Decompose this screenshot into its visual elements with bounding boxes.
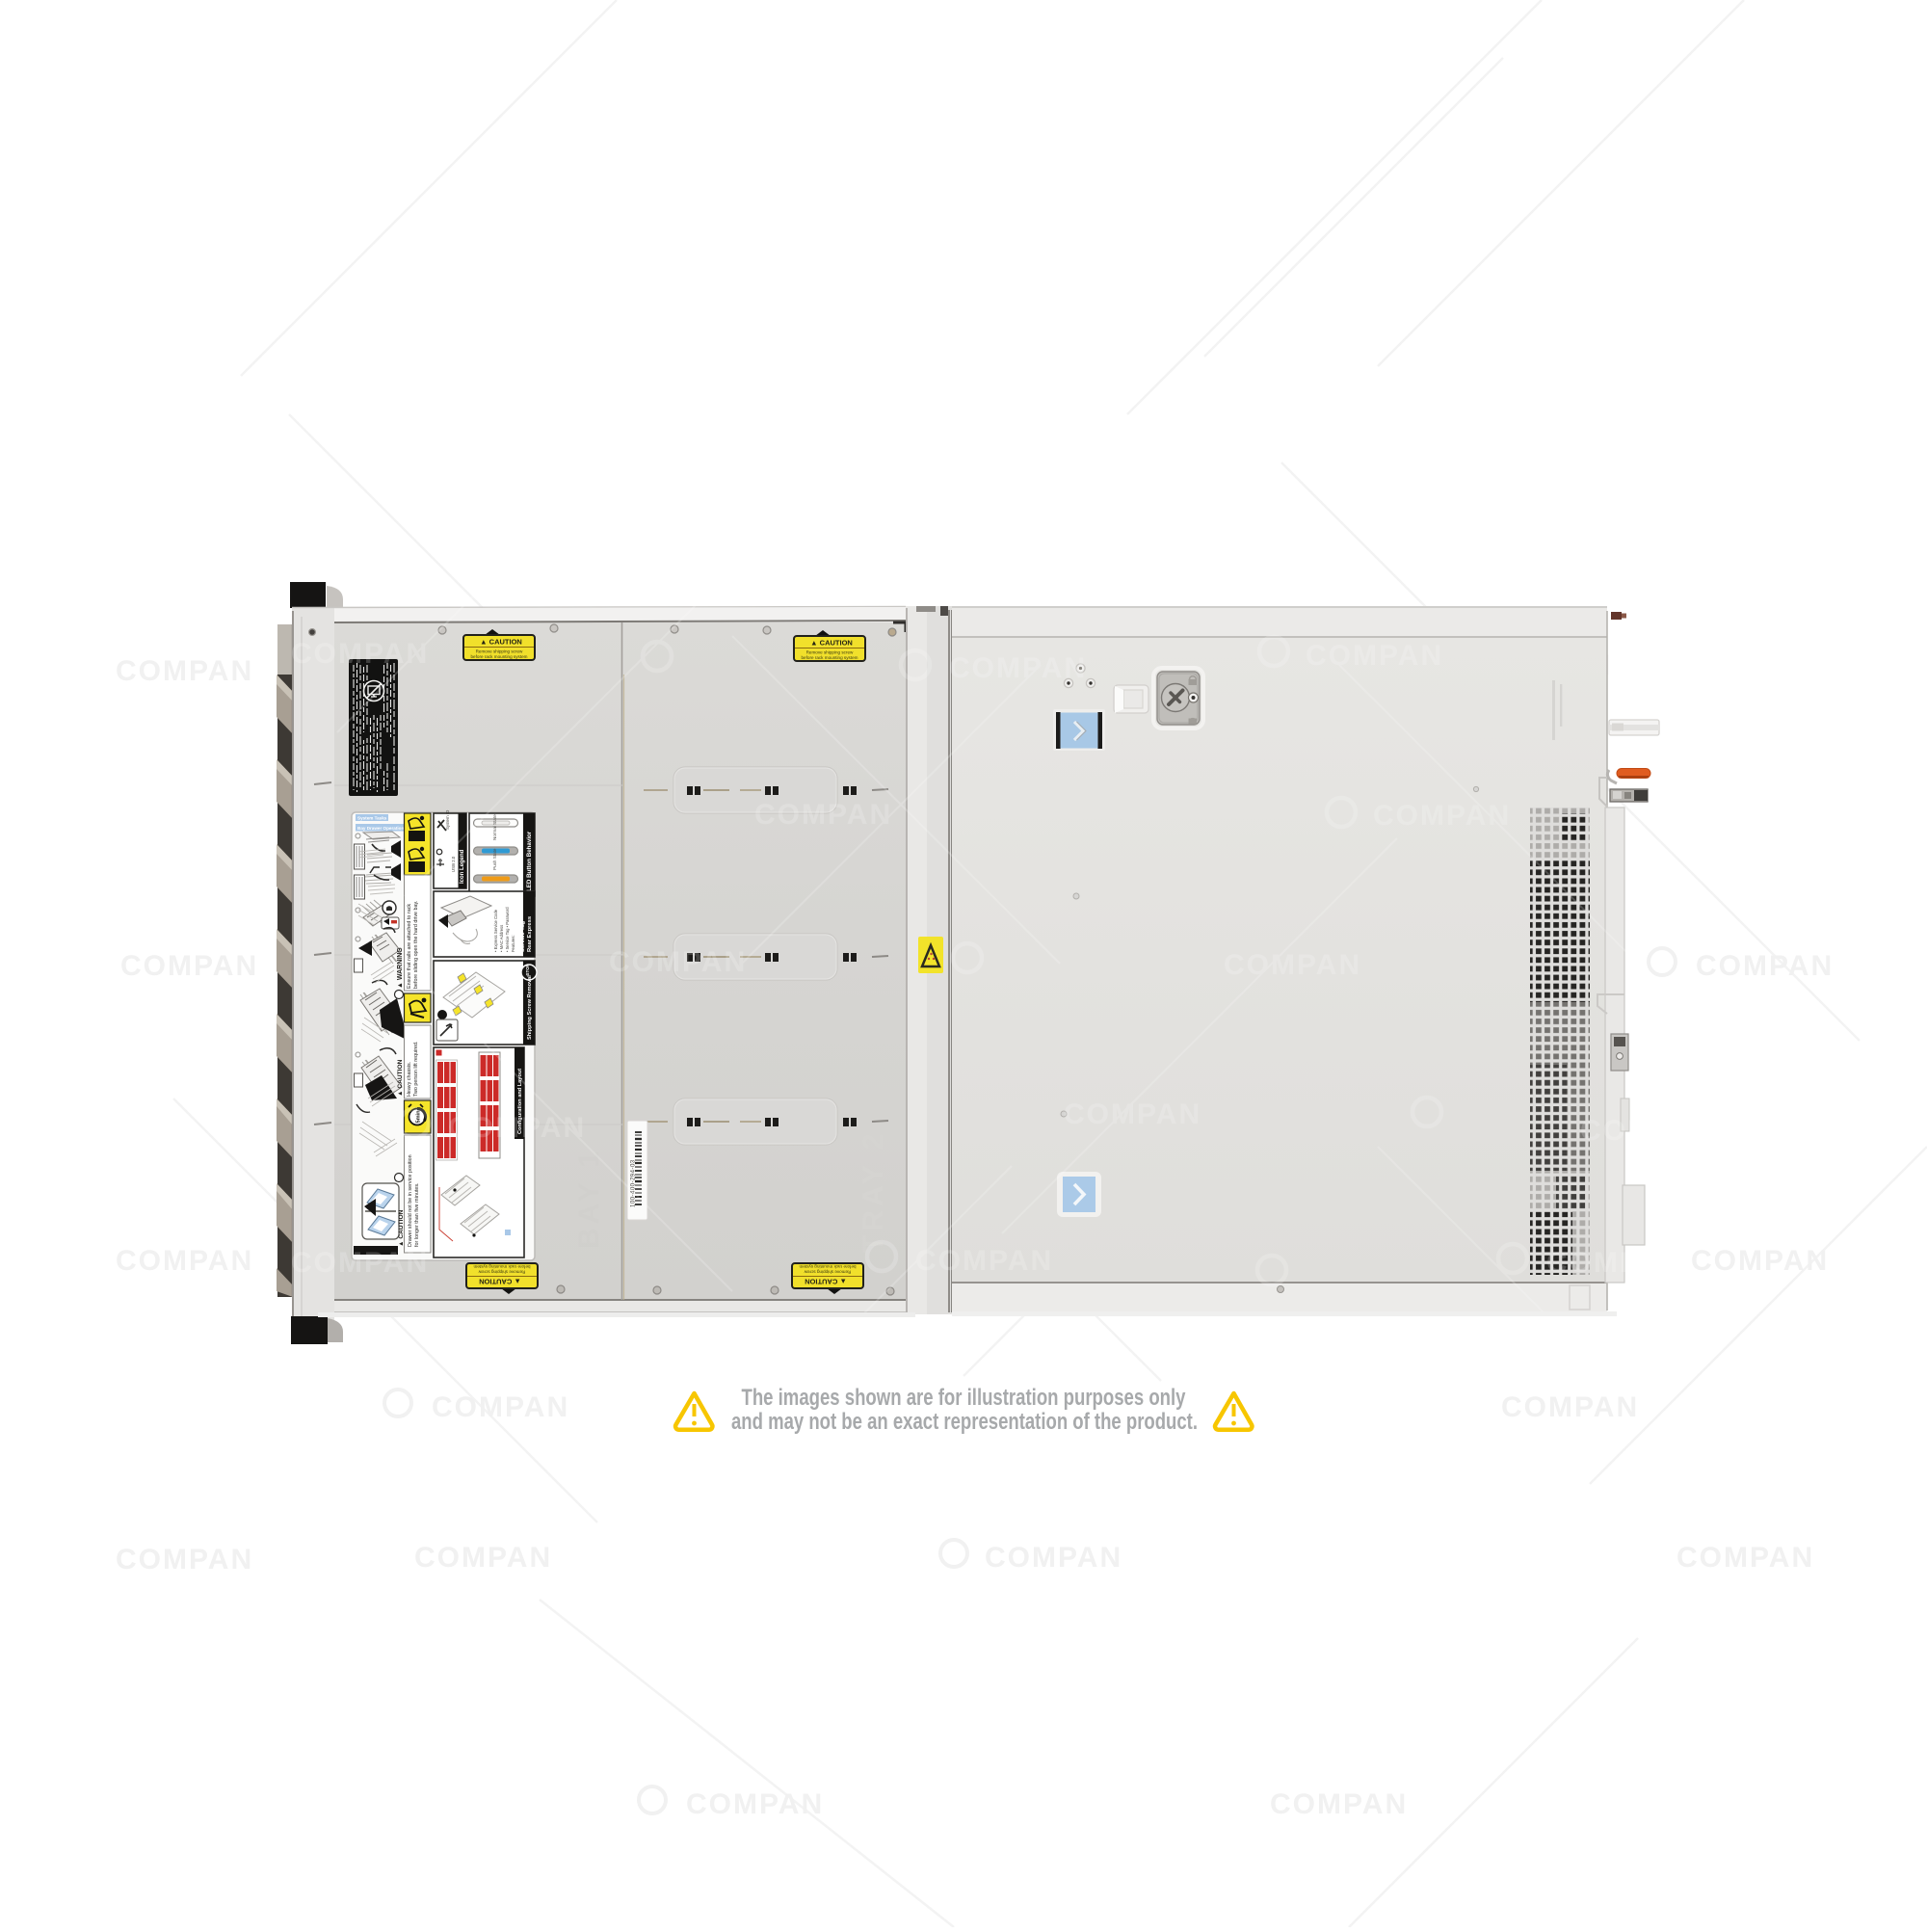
svg-text:USB 2.0: USB 2.0 xyxy=(451,856,456,872)
svg-text:Service Tag: Service Tag xyxy=(520,920,526,952)
svg-text:COMPAN: COMPAN xyxy=(120,950,258,982)
svg-text:System ID: System ID xyxy=(445,810,450,830)
svg-text:COMPAN: COMPAN xyxy=(1501,1391,1639,1423)
svg-text:• Express Service Code: • Express Service Code xyxy=(493,909,498,952)
svg-text:COMPAN: COMPAN xyxy=(1306,640,1443,672)
svg-text:COMPAN: COMPAN xyxy=(1691,1245,1829,1277)
svg-text:LED Button Behavior: LED Button Behavior xyxy=(526,831,533,891)
svg-text:and may not be an exact repres: and may not be an exact representation o… xyxy=(731,1409,1198,1435)
svg-text:COMPAN: COMPAN xyxy=(1676,1542,1814,1574)
svg-text:Heavy chassis.: Heavy chassis. xyxy=(407,1062,412,1097)
svg-text:Ensure that rails are attached: Ensure that rails are attached to rack xyxy=(407,904,412,989)
svg-text:COMPAN: COMPAN xyxy=(915,1245,1053,1277)
svg-text:COMPAN: COMPAN xyxy=(1373,800,1511,832)
svg-text:COMPAN: COMPAN xyxy=(949,652,1087,684)
svg-text:• MAC Address: • MAC Address xyxy=(499,925,504,952)
svg-text:COMPAN: COMPAN xyxy=(686,1788,824,1820)
svg-text:COMPAN: COMPAN xyxy=(116,1245,253,1277)
svg-text:100-400-294-03: 100-400-294-03 xyxy=(630,1159,637,1207)
svg-text:TRAY 2: TRAY 2 xyxy=(858,1130,889,1253)
svg-text:COMPAN: COMPAN xyxy=(432,1391,569,1423)
svg-text:COMPAN: COMPAN xyxy=(609,946,747,978)
svg-text:COMPAN: COMPAN xyxy=(116,1544,253,1575)
svg-text:BAY 1: BAY 1 xyxy=(573,1148,605,1249)
svg-text:COMPAN: COMPAN xyxy=(1224,949,1361,981)
svg-text:Push State: Push State xyxy=(492,848,497,870)
svg-text:for longer than five minutes.: for longer than five minutes. xyxy=(414,1182,420,1247)
svg-text:• Service Tag • Password: • Service Tag • Password xyxy=(505,907,510,952)
svg-text:COMPAN: COMPAN xyxy=(291,638,429,670)
svg-text:▲ WARNING: ▲ WARNING xyxy=(397,947,404,989)
svg-text:Rear Express: Rear Express xyxy=(527,916,533,952)
svg-text:COMPAN: COMPAN xyxy=(985,1542,1122,1574)
svg-text:Normal State: Normal State xyxy=(492,814,497,840)
svg-text:▲ CAUTION: ▲ CAUTION xyxy=(398,1209,405,1247)
svg-text:COMPAN: COMPAN xyxy=(1064,1098,1201,1130)
svg-text:COMPAN: COMPAN xyxy=(448,1112,586,1144)
svg-text:Two person lift required.: Two person lift required. xyxy=(413,1041,419,1097)
svg-text:Features:: Features: xyxy=(511,935,515,952)
svg-text:COMPAN: COMPAN xyxy=(1696,950,1834,982)
svg-text:COMPAN: COMPAN xyxy=(754,799,892,831)
svg-text:▲ CAUTION: ▲ CAUTION xyxy=(397,1059,404,1097)
svg-text:COMPAN: COMPAN xyxy=(1270,1788,1408,1820)
svg-text:Icon Legend: Icon Legend xyxy=(460,849,465,884)
svg-text:The images shown are for illus: The images shown are for illustration pu… xyxy=(742,1385,1187,1411)
svg-text:COMPAN: COMPAN xyxy=(116,655,253,687)
svg-text:Bay Drawer Operation: Bay Drawer Operation xyxy=(357,826,404,831)
svg-text:COMPAN: COMPAN xyxy=(291,1247,429,1279)
svg-text:COMPAN: COMPAN xyxy=(414,1542,552,1574)
svg-text:STOP: STOP xyxy=(525,964,530,975)
svg-text:Drawer should not be in servic: Drawer should not be in service position xyxy=(408,1154,413,1247)
svg-text:System Tasks: System Tasks xyxy=(357,816,387,821)
svg-text:Shipping Screw Removal: Shipping Screw Removal xyxy=(527,975,533,1040)
